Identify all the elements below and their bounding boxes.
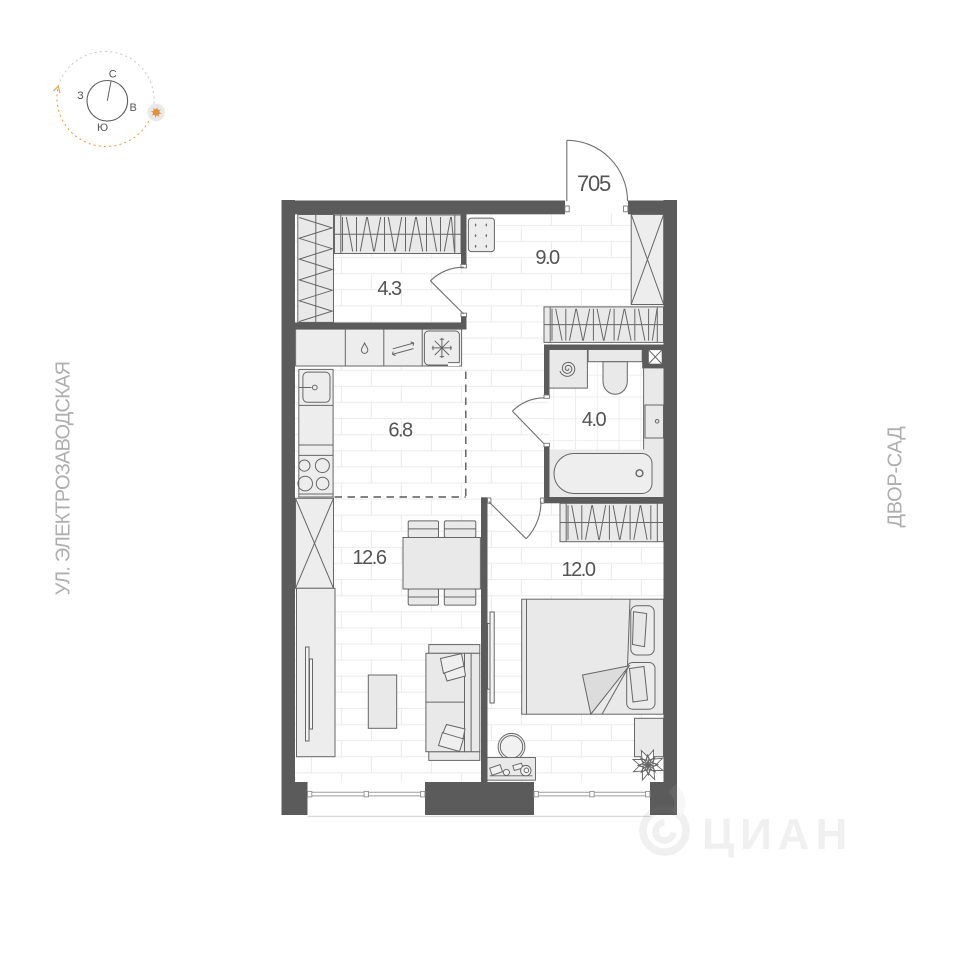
svg-text:4.0: 4.0	[582, 409, 607, 431]
svg-text:6.8: 6.8	[388, 420, 413, 442]
svg-text:ЦИАН: ЦИАН	[702, 810, 853, 859]
svg-text:705: 705	[577, 171, 611, 196]
svg-text:З: З	[77, 90, 84, 102]
svg-text:В: В	[130, 102, 137, 114]
svg-text:УЛ. ЭЛЕКТРОЗАВОДСКАЯ: УЛ. ЭЛЕКТРОЗАВОДСКАЯ	[53, 362, 75, 595]
svg-text:С: С	[109, 69, 117, 81]
svg-text:Ю: Ю	[97, 122, 108, 134]
svg-text:ДВОР-САД: ДВОР-САД	[885, 426, 907, 528]
svg-text:12.0: 12.0	[562, 559, 596, 581]
svg-text:12.6: 12.6	[353, 547, 387, 569]
svg-text:9.0: 9.0	[535, 247, 560, 269]
svg-text:4.3: 4.3	[377, 278, 402, 300]
